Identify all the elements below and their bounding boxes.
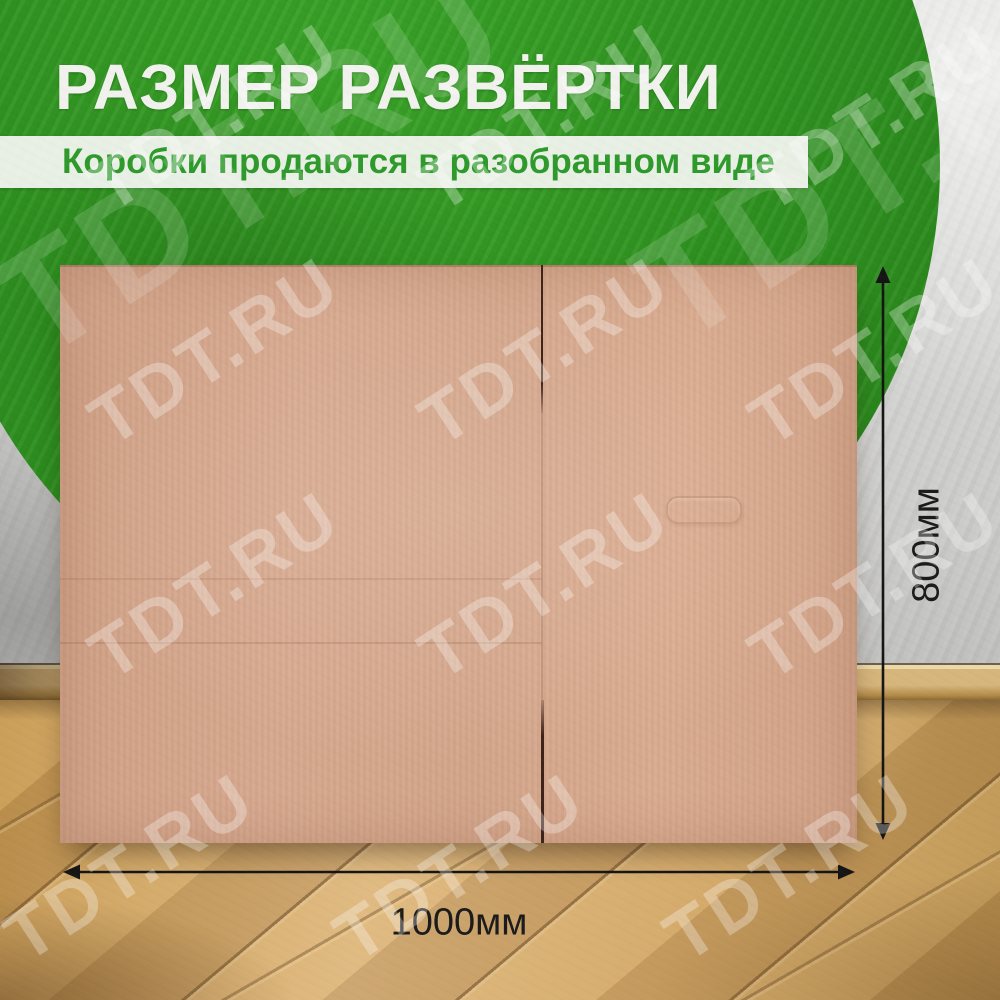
cardboard-crease-line [60, 642, 542, 644]
height-dimension-label: 800мм [906, 487, 949, 603]
cardboard-seam-middle [541, 413, 543, 700]
cardboard-sheet [60, 265, 857, 843]
product-image-canvas: РАЗМЕР РАЗВЁРТКИ Коробки продаются в раз… [0, 0, 1000, 1000]
cardboard-handle-emboss [666, 496, 742, 524]
width-dimension-label: 1000мм [391, 902, 528, 945]
cardboard-crease-line [60, 578, 542, 580]
cardboard-seam-bottom [541, 700, 544, 843]
cardboard-seam-top [541, 265, 543, 413]
subtitle-banner: Коробки продаются в разобранном виде [0, 136, 808, 188]
subtitle-text: Коробки продаются в разобранном виде [62, 136, 775, 188]
page-title: РАЗМЕР РАЗВЁРТКИ [55, 50, 721, 124]
